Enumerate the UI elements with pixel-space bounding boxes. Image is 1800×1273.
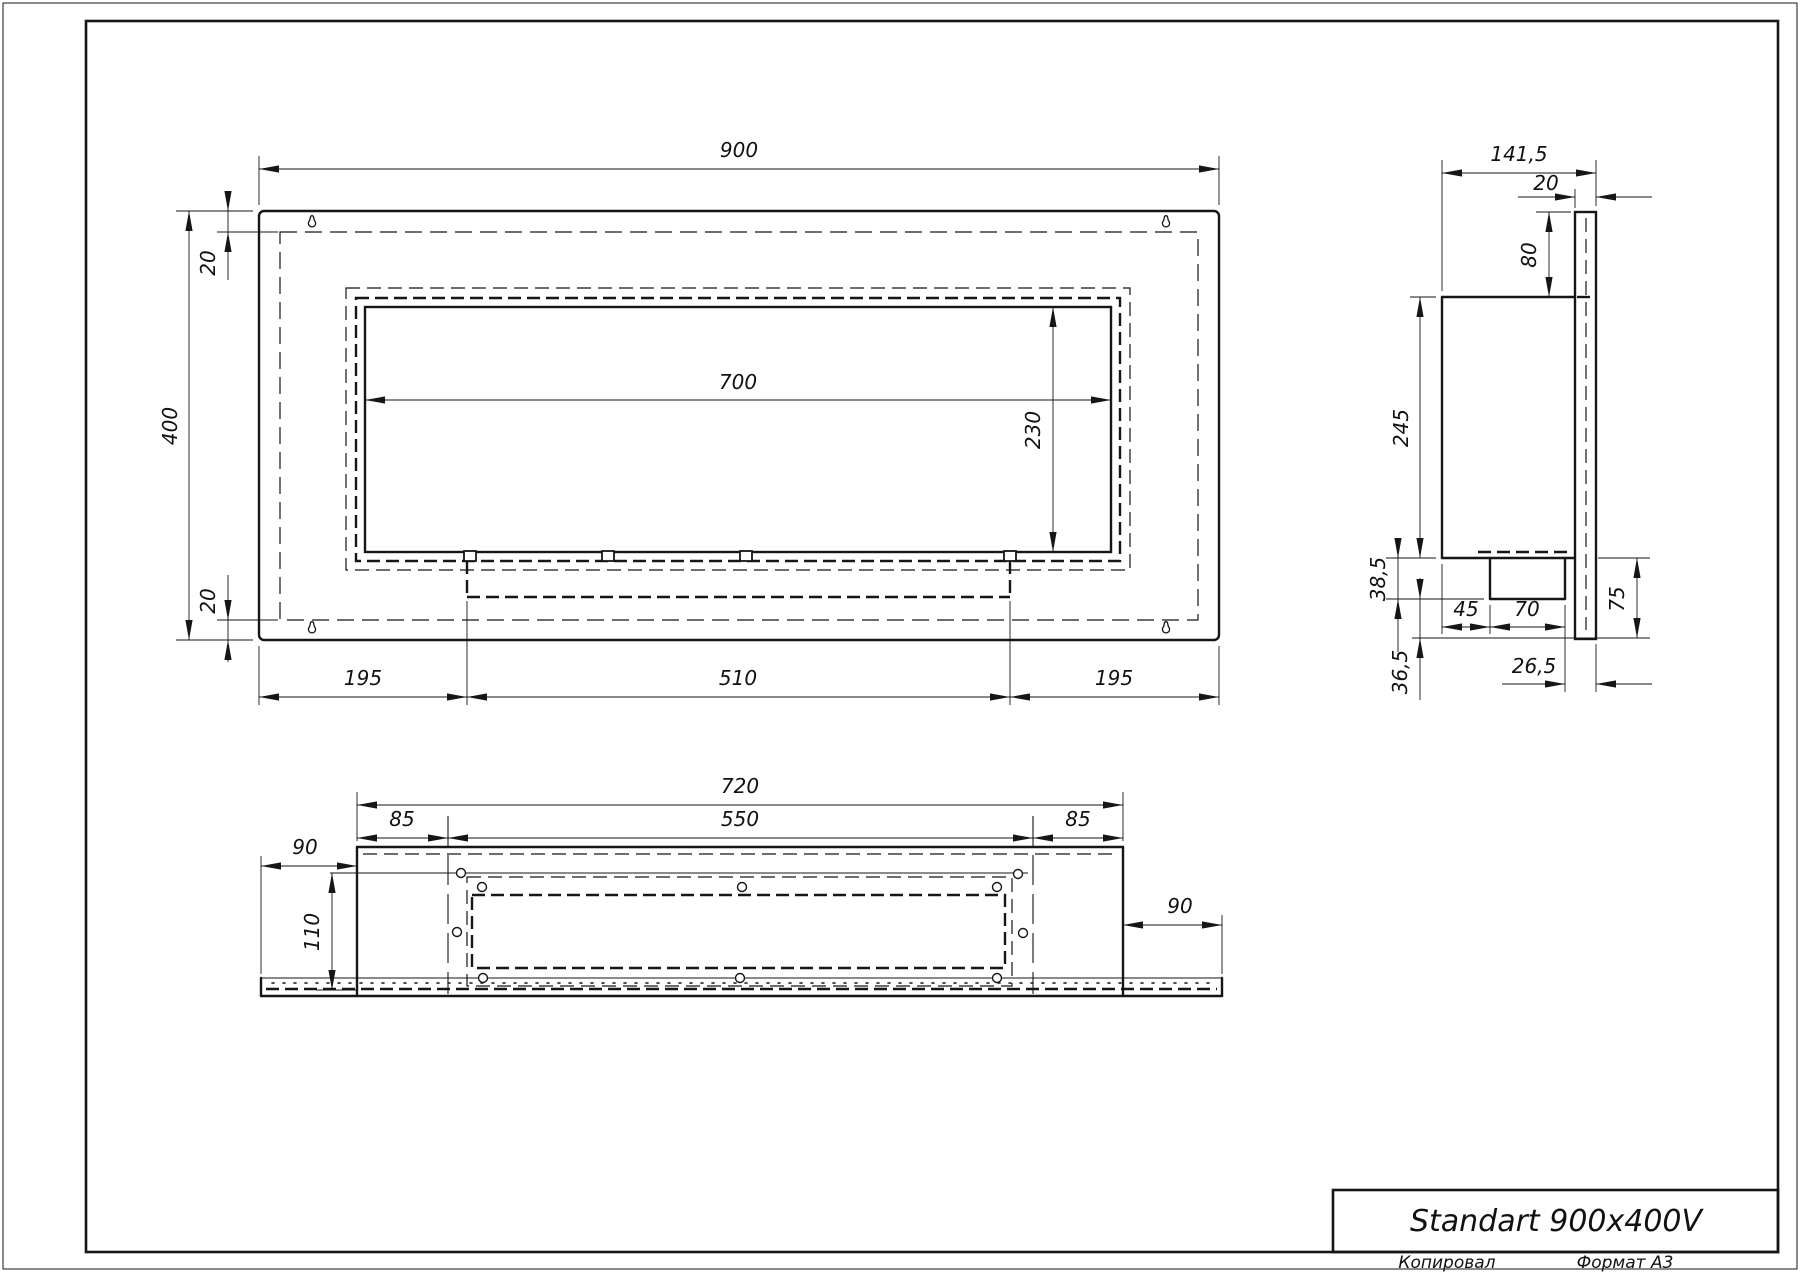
dim-tray-to-plate: 26,5: [1502, 634, 1652, 692]
dim-text-245: 245: [1389, 409, 1413, 447]
dim-text-36-5: 36,5: [1388, 650, 1412, 695]
dim-text-400: 400: [158, 407, 182, 445]
dim-text-141-5: 141,5: [1490, 142, 1547, 166]
dim-plate-below-body: 75: [1598, 558, 1650, 638]
sheet-frame: [3, 3, 1797, 1269]
dim-opening-height: 230: [1021, 307, 1053, 552]
drawing-sheet: 900 400 20 20 700: [0, 0, 1800, 1273]
title-block: Standart 900x400V Копировал Формат А3: [1333, 1190, 1778, 1273]
dim-text-700: 700: [719, 370, 757, 394]
dim-front-flange-bottom: 20: [196, 575, 278, 662]
opening-outer-hidden-box: [346, 288, 1130, 570]
front-panel-outline: [259, 211, 1219, 640]
dim-text-550: 550: [721, 807, 759, 831]
dim-front-flange-top: 20: [196, 191, 278, 280]
mount-outer-hidden-box: [467, 877, 1012, 986]
dim-text-90-left: 90: [292, 835, 317, 859]
dim-text-720: 720: [721, 774, 759, 798]
burner-tray-hidden: [467, 561, 1010, 597]
opening-mid-hidden-box: [356, 298, 1120, 561]
dim-front-overall-width: 900: [259, 138, 1219, 205]
dim-text-45: 45: [1453, 597, 1478, 621]
dim-text-195-left: 195: [344, 666, 382, 690]
dim-mount-depth: 110: [300, 873, 358, 990]
dim-text-110: 110: [300, 913, 324, 951]
copied-label: Копировал: [1398, 1253, 1495, 1273]
dim-band-right: 90: [1123, 894, 1222, 974]
dim-text-20-bottom: 20: [196, 588, 220, 613]
dim-text-80: 80: [1517, 242, 1541, 267]
dim-text-900: 900: [720, 138, 758, 162]
format-label: Формат А3: [1577, 1253, 1674, 1273]
screw-holes: [453, 869, 1028, 983]
dim-band-left: 90: [261, 835, 357, 974]
dim-plate-above-body: 80: [1517, 212, 1571, 297]
dim-text-75: 75: [1605, 586, 1629, 611]
dim-bottom-chain: 85 550 85: [357, 807, 1123, 838]
dim-text-90-right: 90: [1167, 894, 1192, 918]
firebox-opening: [365, 307, 1111, 552]
front-view: 900 400 20 20 700: [158, 138, 1219, 705]
inner-frame: [86, 21, 1778, 1252]
dim-text-38-5: 38,5: [1366, 557, 1390, 602]
dim-text-230: 230: [1021, 411, 1045, 449]
dim-text-85-right: 85: [1065, 807, 1090, 831]
dim-body-height: 245: [1386, 297, 1436, 558]
dim-text-195-right: 195: [1095, 666, 1133, 690]
technical-drawing: 900 400 20 20 700: [0, 0, 1800, 1273]
dim-opening-width: 700: [365, 370, 1111, 400]
dim-text-20-plate: 20: [1533, 171, 1558, 195]
side-tray-outline: [1490, 558, 1565, 599]
drawing-title: Standart 900x400V: [1410, 1204, 1705, 1239]
dim-text-70: 70: [1514, 597, 1539, 621]
mount-inner-hidden-box: [472, 895, 1005, 968]
dim-tray-drop: 38,5: [1366, 538, 1484, 652]
dim-plate-thickness: 20: [1518, 171, 1652, 208]
dim-text-510: 510: [719, 666, 757, 690]
side-view: 141,5 20 80 245 38,5: [1366, 142, 1652, 700]
dim-text-85-left: 85: [389, 807, 414, 831]
wall-plate-outline: [1575, 212, 1596, 639]
dim-front-chain: 195 510 195: [259, 601, 1219, 705]
dim-text-20-top: 20: [196, 250, 220, 275]
outer-border: [3, 3, 1797, 1269]
dim-text-26-5: 26,5: [1512, 654, 1557, 678]
bottom-view: 720 85 550 85 90 110 90: [261, 774, 1222, 996]
